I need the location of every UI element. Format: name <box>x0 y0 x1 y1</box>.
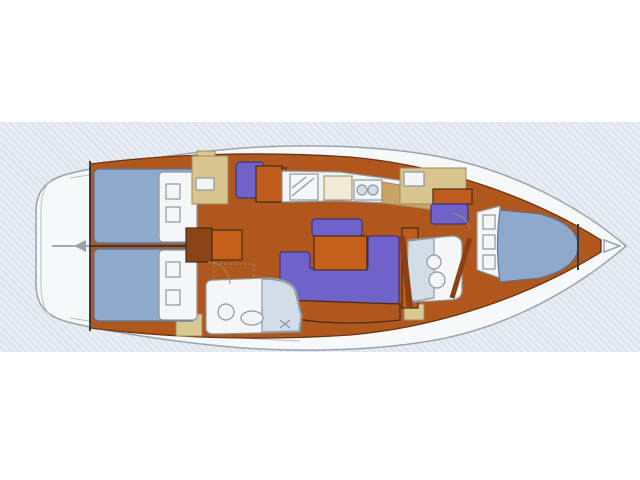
pillow <box>483 255 495 269</box>
galley-cabinet <box>256 166 282 202</box>
engine-box <box>186 228 212 262</box>
boat-floorplan-figure <box>0 0 640 480</box>
nav-cabinet-door <box>196 178 214 190</box>
forward-toilet <box>427 255 441 269</box>
stove <box>324 176 352 200</box>
aft-cabin-upper <box>94 169 197 243</box>
dresser-door <box>404 172 424 186</box>
pillow <box>166 290 180 305</box>
pillow <box>166 262 180 277</box>
salon-table <box>314 236 367 270</box>
deck-plan-drawing <box>0 0 640 480</box>
settee-back-cushion <box>312 219 362 236</box>
pillow <box>483 215 495 229</box>
forward-head <box>402 236 470 308</box>
aft-cabin-lower <box>94 249 197 321</box>
pillow <box>166 207 180 222</box>
washbasin <box>241 311 263 325</box>
companionway-steps <box>212 230 242 260</box>
forward-washbasin <box>429 272 445 288</box>
vanity-back <box>433 189 472 204</box>
toilet <box>218 304 234 320</box>
vanity-seat <box>431 204 468 224</box>
sink-bowl <box>368 185 378 195</box>
pillow <box>483 235 495 249</box>
sink-bowl <box>357 185 367 195</box>
pillow <box>166 184 180 199</box>
